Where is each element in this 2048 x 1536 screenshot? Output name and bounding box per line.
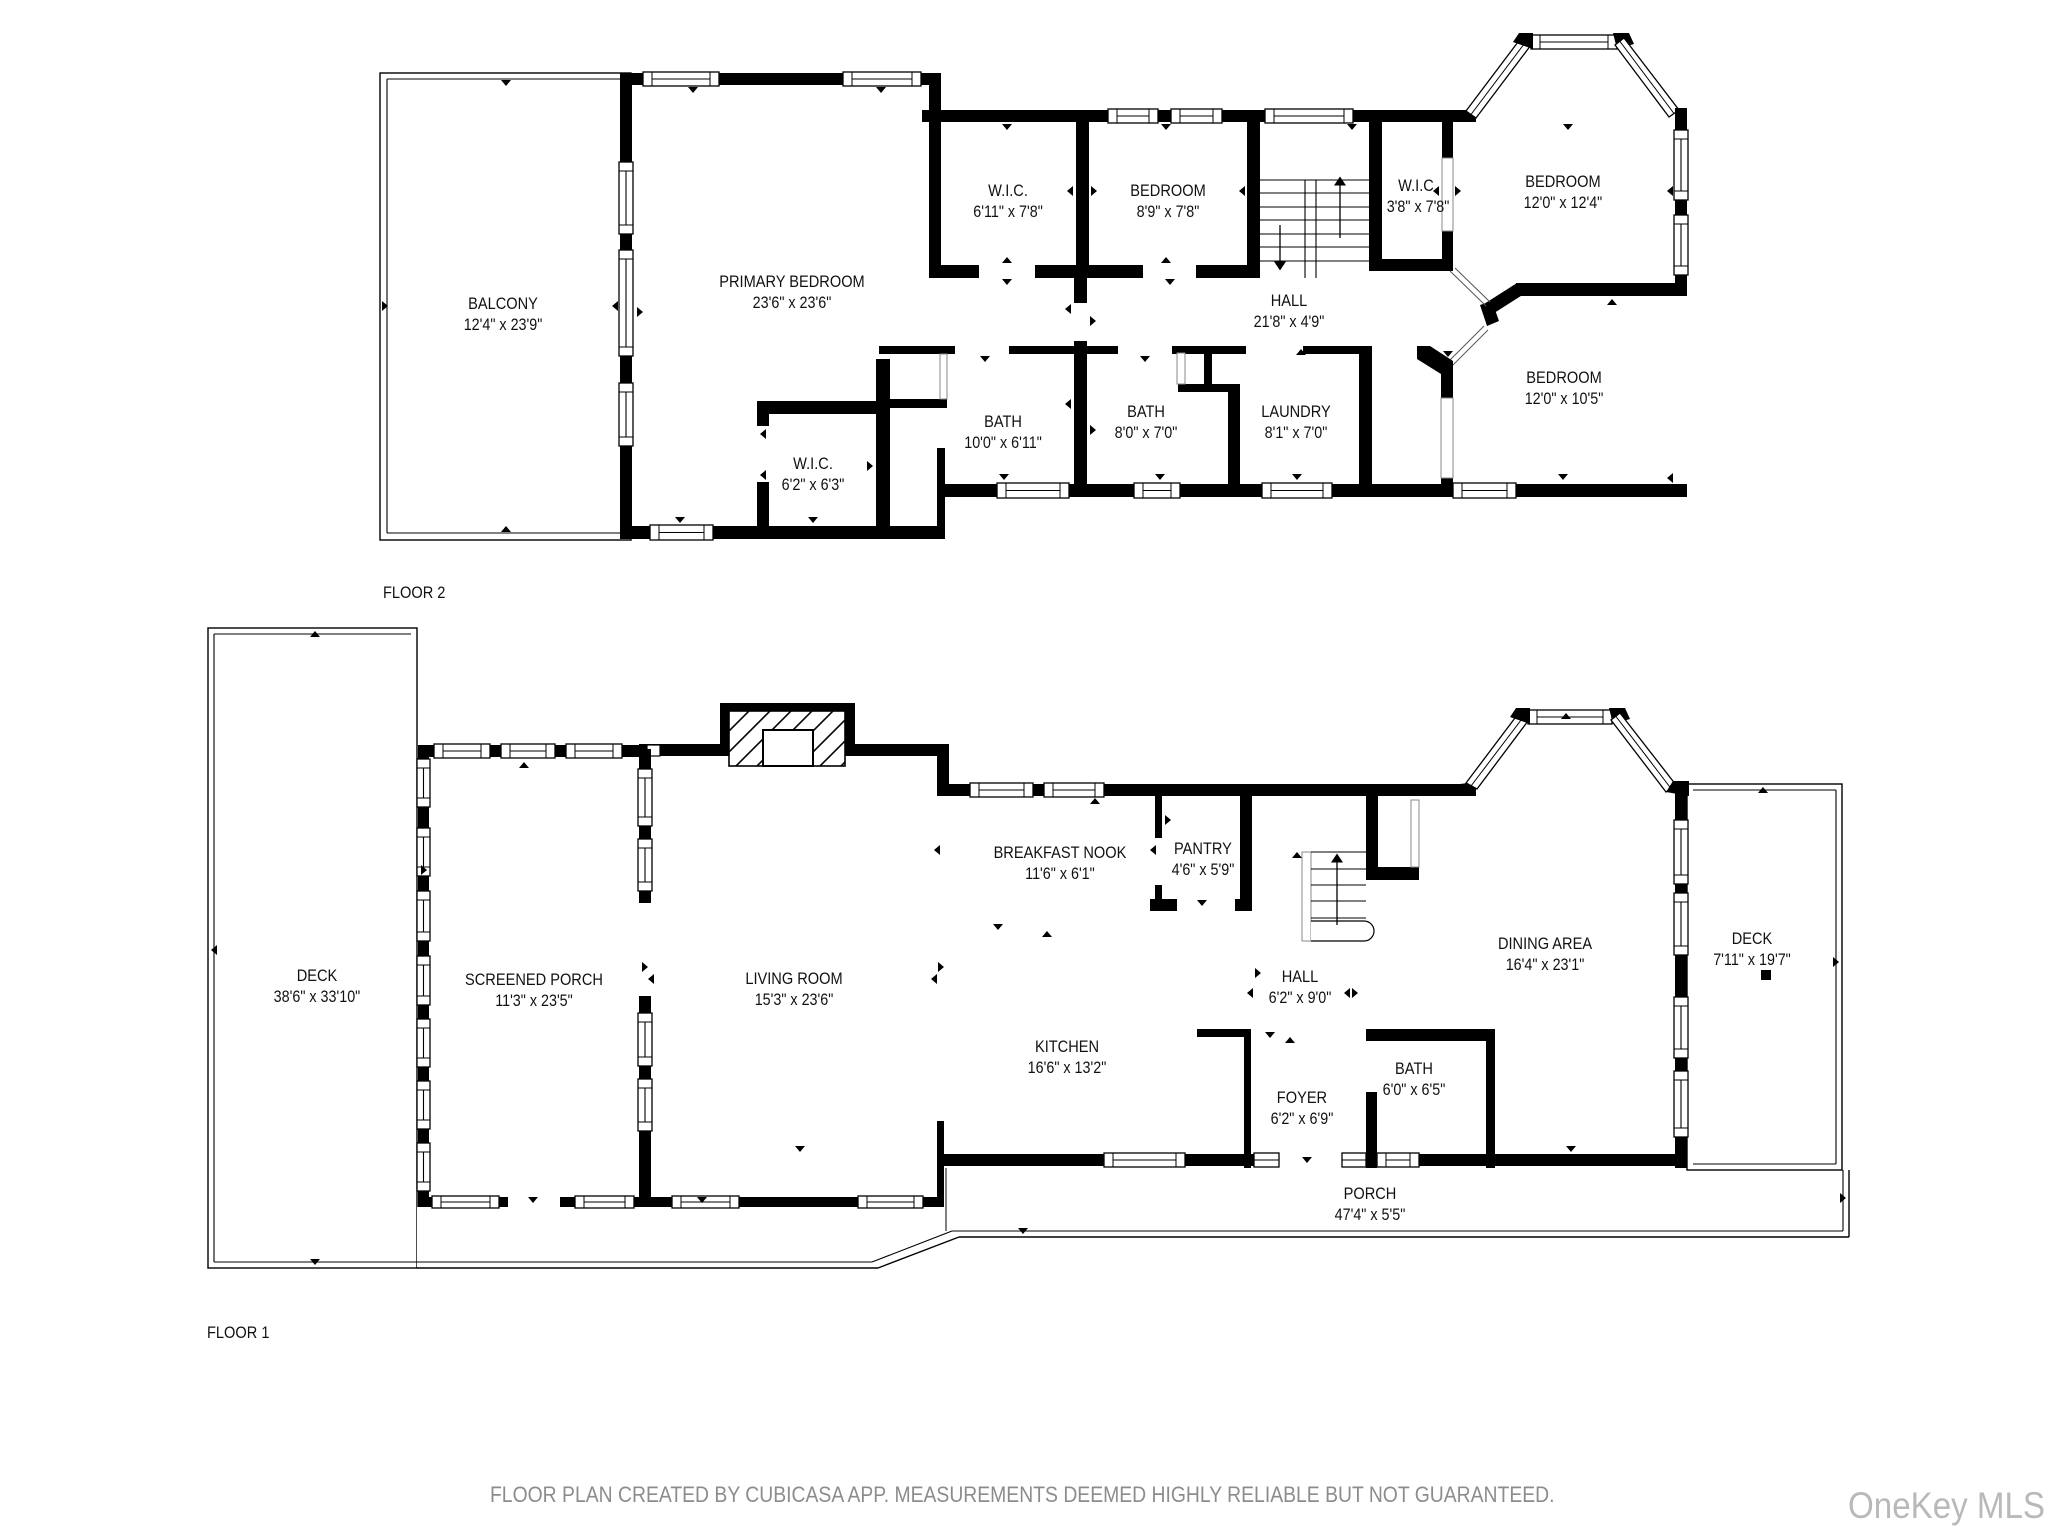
svg-text:BEDROOM: BEDROOM [1525, 173, 1600, 191]
svg-text:21'8" x 4'9": 21'8" x 4'9" [1254, 313, 1325, 331]
svg-text:16'6" x 13'2": 16'6" x 13'2" [1028, 1059, 1107, 1077]
svg-text:OneKey MLS: OneKey MLS [1848, 1485, 2045, 1526]
svg-text:38'6" x 33'10": 38'6" x 33'10" [274, 988, 361, 1006]
svg-text:KITCHEN: KITCHEN [1035, 1038, 1099, 1056]
svg-text:LAUNDRY: LAUNDRY [1261, 403, 1331, 421]
svg-text:BATH: BATH [1127, 403, 1165, 421]
svg-text:BREAKFAST NOOK: BREAKFAST NOOK [994, 844, 1127, 862]
svg-text:BEDROOM: BEDROOM [1526, 369, 1601, 387]
svg-text:8'0" x 7'0": 8'0" x 7'0" [1115, 424, 1178, 442]
svg-text:BATH: BATH [984, 413, 1022, 431]
svg-text:FLOOR PLAN CREATED BY CUBICASA: FLOOR PLAN CREATED BY CUBICASA APP. MEAS… [490, 1483, 1555, 1507]
svg-text:DECK: DECK [297, 967, 338, 985]
svg-text:HALL: HALL [1271, 292, 1308, 310]
svg-text:BEDROOM: BEDROOM [1130, 182, 1205, 200]
svg-text:BALCONY: BALCONY [468, 295, 538, 313]
svg-text:15'3" x 23'6": 15'3" x 23'6" [755, 991, 834, 1009]
svg-text:PORCH: PORCH [1344, 1185, 1397, 1203]
svg-text:DECK: DECK [1732, 930, 1773, 948]
svg-text:11'3" x 23'5": 11'3" x 23'5" [495, 992, 573, 1010]
svg-text:12'0" x 10'5": 12'0" x 10'5" [1525, 390, 1604, 408]
svg-text:6'11" x 7'8": 6'11" x 7'8" [973, 203, 1043, 221]
svg-text:FLOOR 1: FLOOR 1 [207, 1324, 269, 1342]
svg-text:12'4" x 23'9": 12'4" x 23'9" [464, 316, 543, 334]
svg-text:W.I.C.: W.I.C. [793, 455, 833, 473]
svg-text:FOYER: FOYER [1277, 1089, 1327, 1107]
svg-text:8'1" x 7'0": 8'1" x 7'0" [1265, 424, 1328, 442]
svg-text:PANTRY: PANTRY [1174, 840, 1232, 858]
svg-text:PRIMARY BEDROOM: PRIMARY BEDROOM [719, 273, 864, 291]
svg-text:6'2" x 6'3": 6'2" x 6'3" [782, 476, 845, 494]
svg-text:LIVING ROOM: LIVING ROOM [745, 970, 842, 988]
svg-text:W.I.C.: W.I.C. [1398, 177, 1438, 195]
svg-text:11'6" x 6'1": 11'6" x 6'1" [1025, 865, 1095, 883]
svg-text:10'0" x 6'11": 10'0" x 6'11" [964, 434, 1042, 452]
svg-text:HALL: HALL [1282, 968, 1319, 986]
svg-text:4'6" x 5'9": 4'6" x 5'9" [1172, 861, 1235, 879]
svg-text:SCREENED PORCH: SCREENED PORCH [465, 971, 603, 989]
svg-text:W.I.C.: W.I.C. [988, 182, 1028, 200]
svg-text:23'6" x 23'6": 23'6" x 23'6" [753, 294, 832, 312]
svg-text:8'9" x 7'8": 8'9" x 7'8" [1137, 203, 1200, 221]
svg-text:47'4" x 5'5": 47'4" x 5'5" [1335, 1206, 1406, 1224]
svg-text:FLOOR 2: FLOOR 2 [383, 584, 445, 602]
svg-text:6'2" x 9'0": 6'2" x 9'0" [1269, 989, 1332, 1007]
svg-text:7'11" x 19'7": 7'11" x 19'7" [1713, 951, 1791, 969]
svg-text:16'4" x 23'1": 16'4" x 23'1" [1506, 956, 1585, 974]
svg-text:DINING AREA: DINING AREA [1498, 935, 1593, 953]
svg-text:BATH: BATH [1395, 1060, 1433, 1078]
svg-text:6'2" x 6'9": 6'2" x 6'9" [1271, 1110, 1334, 1128]
svg-text:3'8" x 7'8": 3'8" x 7'8" [1387, 198, 1450, 216]
svg-text:6'0" x 6'5": 6'0" x 6'5" [1383, 1081, 1446, 1099]
svg-text:12'0" x 12'4": 12'0" x 12'4" [1524, 194, 1603, 212]
